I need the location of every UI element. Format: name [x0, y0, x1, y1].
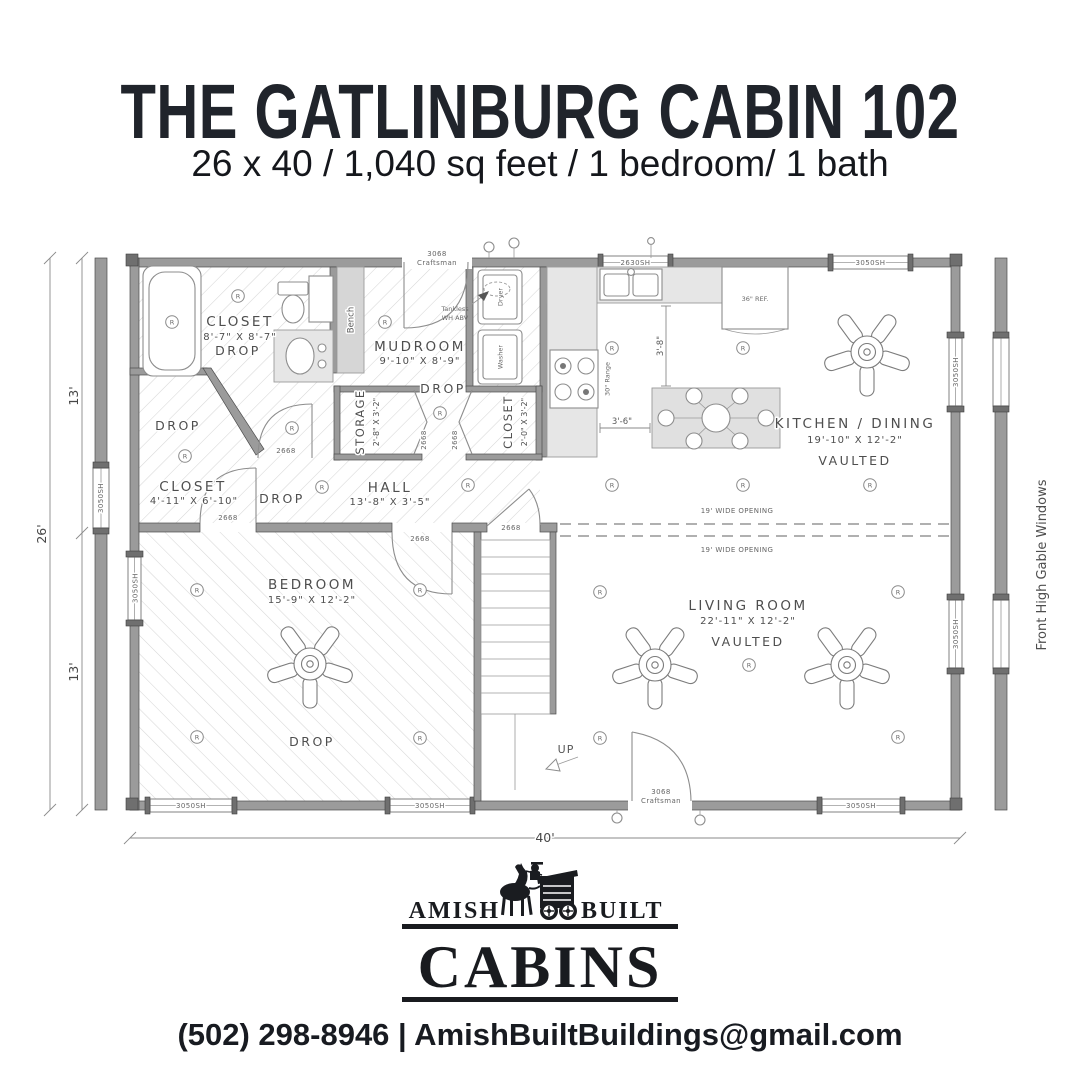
svg-text:26': 26': [34, 524, 49, 543]
svg-text:HALL: HALL: [368, 480, 412, 496]
window-3050sh-top: 3050SH: [828, 254, 913, 271]
linen-cabinet-icon: [309, 276, 333, 322]
svg-text:2668: 2668: [420, 430, 428, 449]
svg-text:3068: 3068: [651, 788, 670, 796]
kitchen-dim-3-8: 3'-8": [656, 306, 671, 386]
svg-text:2668: 2668: [501, 524, 520, 532]
svg-text:13': 13': [66, 662, 81, 681]
vanity-sink-icon: [274, 330, 333, 382]
svg-text:3'-6": 3'-6": [612, 417, 632, 427]
dim-half-13-top: 13': [66, 252, 88, 539]
svg-text:DROP: DROP: [420, 381, 466, 396]
svg-text:MUDROOM: MUDROOM: [374, 339, 466, 355]
fridge-label: 36" REF.: [742, 295, 769, 303]
ceiling-fan-living-2: [803, 625, 891, 709]
svg-text:3050SH: 3050SH: [846, 802, 876, 810]
ceiling-fan-kitchen: [823, 312, 911, 396]
svg-text:CLOSET: CLOSET: [501, 395, 515, 449]
bench-icon: Bench: [337, 267, 364, 373]
svg-text:2'-0" X 3'-2": 2'-0" X 3'-2": [520, 398, 529, 446]
right-gable-wall: [993, 258, 1009, 810]
svg-text:VAULTED: VAULTED: [711, 634, 784, 649]
svg-text:2668: 2668: [451, 430, 459, 449]
company-logo: AMISH BUILT CABINS: [400, 856, 680, 1008]
svg-text:13'-8" X 3'-5": 13'-8" X 3'-5": [350, 497, 431, 508]
range-icon: 30" Range: [550, 350, 612, 408]
svg-text:3'-8": 3'-8": [656, 336, 666, 356]
front-door: 3068 Craftsman: [628, 732, 692, 812]
svg-text:LIVING ROOM: LIVING ROOM: [688, 598, 807, 614]
svg-text:DROP: DROP: [289, 734, 335, 749]
svg-text:3050SH: 3050SH: [176, 802, 206, 810]
window-label: 3050SH: [97, 483, 105, 513]
svg-text:Craftsman: Craftsman: [417, 259, 457, 267]
horse-wagon-icon: [500, 862, 578, 920]
svg-text:2668: 2668: [276, 447, 295, 455]
svg-text:STORAGE: STORAGE: [353, 389, 367, 454]
washer-icon: Washer: [478, 330, 522, 384]
svg-text:DROP: DROP: [215, 343, 261, 358]
up-arrow-icon: [546, 757, 578, 771]
svg-text:19'-10" X 12'-2": 19'-10" X 12'-2": [807, 435, 903, 446]
svg-text:3050SH: 3050SH: [952, 619, 960, 649]
svg-text:22'-11" X 12'-2": 22'-11" X 12'-2": [700, 616, 796, 627]
logo-rule-bottom: [402, 997, 678, 1002]
ceiling-fan-living-1: [611, 625, 699, 709]
logo-word-cabins: CABINS: [418, 934, 663, 1000]
gable-windows-note: Front High Gable Windows: [1035, 479, 1050, 650]
window-3050sh-bottom-3: 3050SH: [817, 797, 905, 814]
window-3050sh-right-lower: 3050SH: [947, 594, 964, 674]
window-3050sh-bottom-2: 3050SH: [385, 797, 475, 814]
dim-depth-26: 26': [34, 252, 56, 816]
up-label: UP: [558, 743, 575, 756]
wide-opening: 19' WIDE OPENING 19' WIDE OPENING: [560, 507, 951, 554]
svg-text:3050SH: 3050SH: [132, 573, 140, 603]
dryer-label: Dryer: [497, 288, 505, 307]
svg-text:3050SH: 3050SH: [415, 802, 445, 810]
room-label-kitchen: KITCHEN / DINING 19'-10" X 12'-2" VAULTE…: [775, 416, 936, 468]
refrigerator-icon: 36" REF.: [722, 267, 788, 334]
svg-text:3050SH: 3050SH: [856, 259, 886, 267]
logo-word-amish: AMISH: [409, 898, 500, 924]
svg-text:8'-7" X 8'-7": 8'-7" X 8'-7": [203, 332, 277, 343]
contact-info: (502) 298-8946 | AmishBuiltBuildings@gma…: [0, 1017, 1080, 1053]
svg-text:13': 13': [66, 386, 81, 405]
washer-label: Washer: [497, 345, 505, 369]
room-label-living: LIVING ROOM 22'-11" X 12'-2" VAULTED: [688, 598, 807, 649]
svg-text:VAULTED: VAULTED: [818, 453, 891, 468]
kitchen-island-icon: [652, 388, 780, 449]
drop-label-1: DROP: [155, 418, 201, 433]
window-3050sh-bottom-1: 3050SH: [145, 797, 237, 814]
staircase: UP: [481, 540, 578, 790]
drop-label-2: DROP: [259, 491, 305, 506]
svg-text:40': 40': [535, 830, 554, 845]
svg-text:CLOSET: CLOSET: [159, 479, 226, 495]
window-3050sh-right-upper: 3050SH: [947, 332, 964, 412]
kitchen-dim-3-6: 3'-6": [600, 417, 650, 433]
svg-text:Tankless: Tankless: [440, 305, 469, 313]
logo-rule-top: [402, 924, 678, 929]
range-label: 30" Range: [604, 362, 612, 396]
page-subtitle: 26 x 40 / 1,040 sq feet / 1 bedroom/ 1 b…: [0, 143, 1080, 185]
logo-word-built: BUILT: [581, 898, 664, 924]
svg-text:KITCHEN / DINING: KITCHEN / DINING: [775, 416, 936, 432]
svg-text:15'-9" X 12'-2": 15'-9" X 12'-2": [268, 595, 356, 606]
svg-text:CLOSET: CLOSET: [206, 314, 273, 330]
svg-text:2668: 2668: [218, 514, 237, 522]
wide-opening-label-bottom: 19' WIDE OPENING: [701, 546, 774, 554]
svg-text:4'-11" X 6'-10": 4'-11" X 6'-10": [150, 496, 238, 507]
wide-opening-label-top: 19' WIDE OPENING: [701, 507, 774, 515]
room-label-rear-closet: CLOSET 4'-11" X 6'-10": [150, 479, 238, 507]
kitchen-fixtures: 30" Range 36" REF. 3'-8" 3'-6": [547, 267, 788, 457]
svg-text:3050SH: 3050SH: [952, 357, 960, 387]
svg-text:Craftsman: Craftsman: [641, 797, 681, 805]
svg-text:BEDROOM: BEDROOM: [268, 577, 356, 593]
svg-text:2'-8" X 3'-2": 2'-8" X 3'-2": [372, 398, 381, 446]
floor-plan: R 3050SH: [30, 225, 1070, 870]
svg-text:2668: 2668: [410, 535, 429, 543]
svg-text:3068: 3068: [427, 250, 446, 258]
dim-width-40: 40': [124, 830, 966, 845]
svg-text:9'-10" X 8'-9": 9'-10" X 8'-9": [380, 356, 461, 367]
left-gable-wall: 3050SH: [93, 258, 109, 810]
svg-text:2630SH: 2630SH: [621, 259, 651, 267]
dim-half-13-bottom: 13': [66, 533, 88, 816]
kitchen-sink-icon: [600, 269, 662, 300]
bench-label: Bench: [347, 307, 357, 334]
window-3050sh-left: 3050SH: [126, 551, 143, 626]
svg-text:WH ABV: WH ABV: [442, 314, 469, 322]
